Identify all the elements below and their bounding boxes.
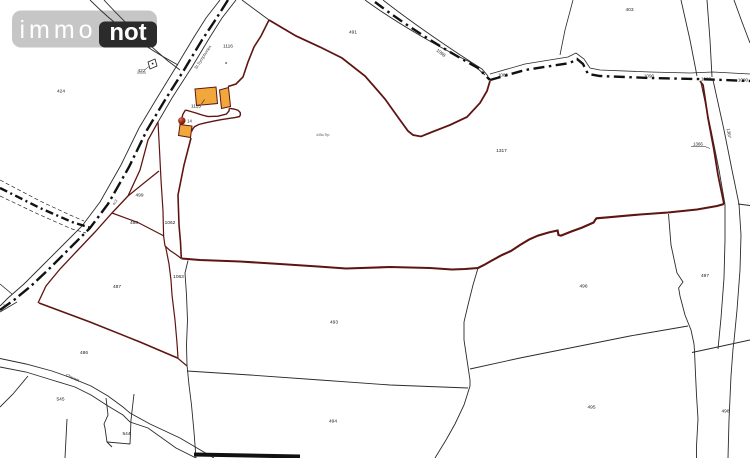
- svg-text:488: 488: [130, 220, 138, 226]
- svg-text:d.Bo.Trp: d.Bo.Trp: [317, 133, 330, 137]
- svg-text:14: 14: [187, 119, 192, 124]
- svg-text:494: 494: [329, 419, 337, 425]
- svg-text:1115: 1115: [191, 104, 201, 110]
- svg-text:487: 487: [113, 284, 121, 290]
- svg-text:1116: 1116: [223, 44, 233, 50]
- svg-text:immo: immo: [19, 16, 96, 44]
- svg-text:486: 486: [80, 350, 88, 356]
- svg-text:495: 495: [587, 405, 595, 411]
- svg-text:1317: 1317: [496, 148, 507, 154]
- svg-text:403: 403: [625, 7, 633, 13]
- svg-text:491: 491: [349, 30, 357, 36]
- svg-text:1023: 1023: [701, 77, 712, 82]
- svg-text:1366: 1366: [693, 142, 703, 147]
- svg-text:497: 497: [701, 273, 709, 279]
- svg-text:545: 545: [56, 397, 64, 403]
- svg-text:493: 493: [330, 320, 338, 326]
- svg-text:1062: 1062: [165, 220, 176, 226]
- svg-text:498: 498: [721, 409, 729, 415]
- svg-text:1090: 1090: [644, 74, 655, 79]
- svg-text:544: 544: [122, 431, 130, 437]
- svg-text:499: 499: [135, 193, 143, 199]
- svg-text:1089: 1089: [498, 73, 509, 78]
- svg-text:1090: 1090: [738, 78, 749, 83]
- svg-text:not: not: [109, 19, 146, 46]
- svg-text:1063: 1063: [173, 274, 184, 280]
- svg-text:424: 424: [57, 89, 65, 95]
- svg-text:496: 496: [579, 284, 587, 290]
